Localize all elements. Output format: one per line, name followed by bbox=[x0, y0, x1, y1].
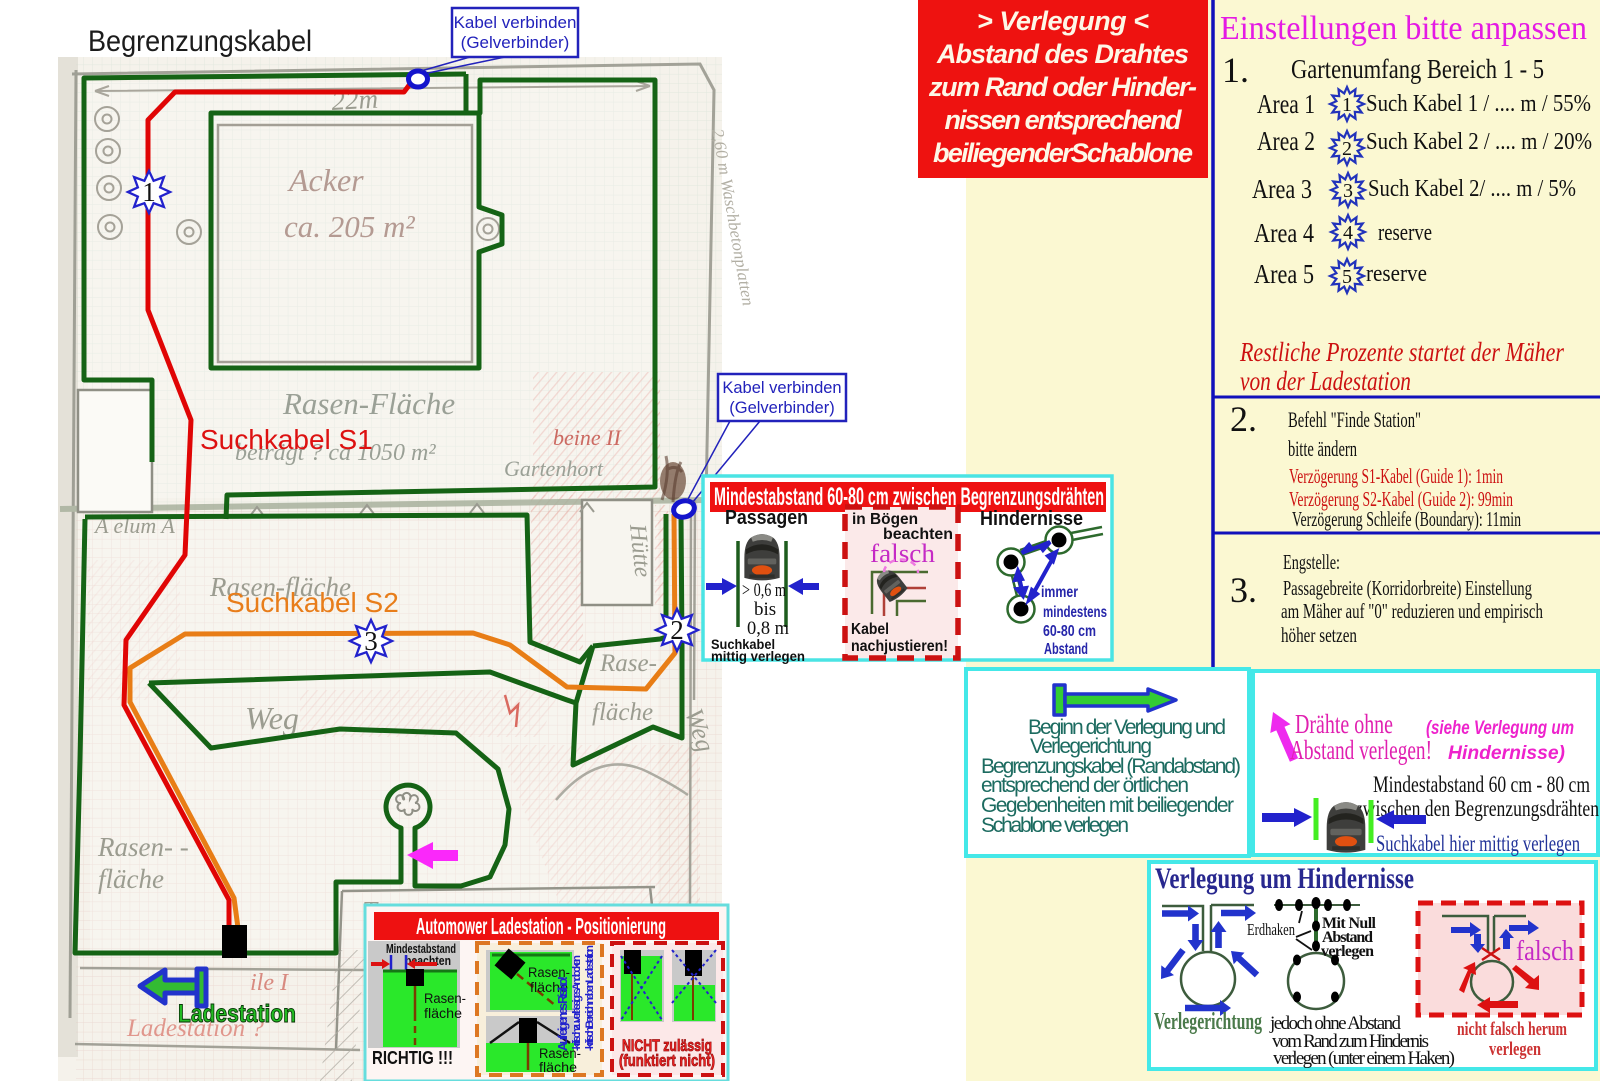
svg-text:Restliche Prozente startet de: Restliche Prozente startet der Mäher bbox=[1239, 337, 1564, 367]
svg-text:Weg: Weg bbox=[245, 700, 299, 736]
svg-text:Acker: Acker bbox=[287, 162, 364, 198]
svg-text:Rasen-: Rasen- bbox=[424, 991, 466, 1006]
svg-text:Schablone verlegen: Schablone verlegen bbox=[981, 814, 1129, 837]
svg-text:reserve: reserve bbox=[1378, 220, 1432, 246]
svg-text:fläche: fläche bbox=[592, 699, 653, 726]
svg-text:1: 1 bbox=[1342, 94, 1352, 116]
svg-text:nachjustieren!: nachjustieren! bbox=[851, 638, 948, 655]
svg-text:Area 4: Area 4 bbox=[1254, 218, 1314, 248]
svg-text:Befehl "Finde Station": Befehl "Finde Station" bbox=[1288, 407, 1421, 432]
svg-text:Hindernisse): Hindernisse) bbox=[1448, 743, 1565, 764]
svg-text:0,8 m: 0,8 m bbox=[747, 618, 789, 639]
svg-text:Mindestabstand 60 cm - 80 cm: Mindestabstand 60 cm - 80 cm bbox=[1373, 772, 1590, 797]
svg-text:Begrenzungskabel: Begrenzungskabel bbox=[88, 25, 312, 58]
svg-text:fläche: fläche bbox=[98, 864, 164, 894]
svg-text:Gartenhort: Gartenhort bbox=[504, 456, 604, 481]
svg-text:(Gelverbinder): (Gelverbinder) bbox=[729, 399, 834, 417]
svg-text:3: 3 bbox=[364, 626, 378, 656]
svg-text:verlegen: verlegen bbox=[1489, 1039, 1541, 1060]
svg-text:(Gelverbinder): (Gelverbinder) bbox=[461, 33, 570, 52]
svg-text:Kabel: Kabel bbox=[851, 621, 889, 638]
svg-text:Area 1: Area 1 bbox=[1257, 89, 1315, 119]
svg-text:(siehe Verlegung um: (siehe Verlegung um bbox=[1426, 718, 1574, 739]
svg-text:Area 2: Area 2 bbox=[1257, 126, 1315, 156]
svg-text:Abstand verlegen!: Abstand verlegen! bbox=[1290, 735, 1432, 765]
svg-text:2: 2 bbox=[670, 615, 684, 645]
svg-text:3: 3 bbox=[1343, 180, 1353, 202]
svg-text:Passagen: Passagen bbox=[725, 507, 808, 529]
svg-text:Such Kabel 2 / .... m / 20%: Such Kabel 2 / .... m / 20% bbox=[1366, 129, 1592, 155]
svg-text:mittig verlegen: mittig verlegen bbox=[711, 649, 805, 664]
svg-text:Einstellungen bitte anpassen: Einstellungen bitte anpassen bbox=[1220, 10, 1587, 47]
svg-text:2: 2 bbox=[1342, 138, 1352, 160]
svg-text:Kabel verbinden: Kabel verbinden bbox=[454, 13, 577, 32]
svg-text:Suchkabel hier mittig verlegen: Suchkabel hier mittig verlegen bbox=[1376, 831, 1580, 856]
svg-text:Gartenumfang Bereich 1 - 5: Gartenumfang Bereich 1 - 5 bbox=[1291, 54, 1544, 84]
svg-text:Such Kabel 1 / .... m / 55%: Such Kabel 1 / .... m / 55% bbox=[1366, 91, 1591, 117]
svg-text:bis: bis bbox=[754, 599, 776, 620]
svg-text:Verlegung um Hindernisse: Verlegung um Hindernisse bbox=[1155, 862, 1414, 895]
svg-text:ile I: ile I bbox=[250, 970, 289, 996]
svg-text:Ladestation: Ladestation bbox=[178, 1000, 296, 1028]
svg-text:Abstand des Drahtes: Abstand des Drahtes bbox=[936, 39, 1189, 69]
svg-text:beiliegenderSchablone: beiliegenderSchablone bbox=[933, 138, 1193, 168]
svg-text:Verzögerung Schleife (Boundary: Verzögerung Schleife (Boundary): 11min bbox=[1292, 507, 1521, 531]
svg-text:> Verlegung <: > Verlegung < bbox=[977, 6, 1149, 36]
svg-text:- kritisch Bereich neben Lades: - kritisch Bereich neben Ladestation bbox=[584, 945, 596, 1051]
svg-text:- kritisch zuverlässiges Andoc: - kritisch zuverlässiges Andocken bbox=[571, 955, 583, 1051]
svg-text:Hindernisse: Hindernisse bbox=[980, 508, 1083, 530]
svg-text:Area 3: Area 3 bbox=[1252, 174, 1312, 204]
svg-text:5: 5 bbox=[1342, 266, 1352, 288]
svg-text:reserve: reserve bbox=[1366, 261, 1427, 287]
svg-text:2.: 2. bbox=[1230, 399, 1257, 439]
svg-text:Engstelle:: Engstelle: bbox=[1283, 550, 1340, 574]
svg-text:RICHTIG !!!: RICHTIG !!! bbox=[372, 1048, 453, 1068]
svg-text:falsch: falsch bbox=[870, 539, 935, 568]
svg-text:fläche: fläche bbox=[424, 1006, 462, 1021]
svg-text:falsch: falsch bbox=[1516, 936, 1574, 967]
svg-text:> 0,6 m: > 0,6 m bbox=[742, 580, 786, 601]
svg-text:Auf eigenes Risiko!: Auf eigenes Risiko! bbox=[556, 976, 570, 1051]
svg-text:ca. 205 m²: ca. 205 m² bbox=[284, 209, 415, 244]
svg-text:Abstand: Abstand bbox=[1044, 641, 1088, 658]
svg-text:Rasen- -: Rasen- - bbox=[97, 832, 189, 862]
svg-text:höher setzen: höher setzen bbox=[1281, 623, 1357, 647]
svg-text:immer: immer bbox=[1041, 584, 1078, 601]
svg-text:am Mäher auf "0" reduzieren un: am Mäher auf "0" reduzieren und empirisc… bbox=[1281, 599, 1543, 623]
svg-text:Verlegerichtung: Verlegerichtung bbox=[1154, 1009, 1262, 1035]
svg-text:60-80 cm: 60-80 cm bbox=[1043, 623, 1096, 640]
svg-text:Suchkabel S2: Suchkabel S2 bbox=[226, 587, 399, 618]
svg-text:Kabel verbinden: Kabel verbinden bbox=[722, 379, 841, 397]
svg-text:(funktiert nicht): (funktiert nicht) bbox=[619, 1051, 715, 1070]
svg-text:nissen entsprechend: nissen entsprechend bbox=[945, 105, 1183, 135]
svg-text:bitte ändern: bitte ändern bbox=[1288, 436, 1357, 461]
svg-text:zum Rand oder Hinder-: zum Rand oder Hinder- bbox=[928, 72, 1197, 102]
svg-text:Suchkabel S1: Suchkabel S1 bbox=[200, 424, 373, 455]
svg-text:fläche: fläche bbox=[539, 1060, 577, 1075]
svg-text:Rasen-Fläche: Rasen-Fläche bbox=[282, 386, 455, 421]
svg-text:4: 4 bbox=[1343, 222, 1353, 244]
svg-text:Verzögerung S1-Kabel (Guide 1): Verzögerung S1-Kabel (Guide 1): 1min bbox=[1289, 464, 1503, 488]
svg-text:nicht falsch herum: nicht falsch herum bbox=[1457, 1019, 1567, 1040]
svg-text:verlegen (unter einem Haken): verlegen (unter einem Haken) bbox=[1273, 1048, 1455, 1069]
svg-text:Passagebreite (Korridorbreite): Passagebreite (Korridorbreite) Einstellu… bbox=[1283, 576, 1532, 600]
svg-text:Such Kabel 2/ .... m / 5%: Such Kabel 2/ .... m / 5% bbox=[1368, 176, 1576, 202]
svg-text:1: 1 bbox=[142, 177, 156, 207]
svg-text:mindestens: mindestens bbox=[1043, 604, 1107, 621]
svg-text:1.: 1. bbox=[1222, 50, 1249, 90]
svg-text:beine II: beine II bbox=[553, 425, 622, 450]
svg-text:Automower Ladestation - Positi: Automower Ladestation - Positionierung bbox=[416, 913, 666, 939]
svg-text:Rase-: Rase- bbox=[599, 650, 657, 677]
svg-text:Area 5: Area 5 bbox=[1254, 259, 1314, 289]
svg-text:von der Ladestation: von der Ladestation bbox=[1240, 366, 1411, 396]
svg-text:verlegen: verlegen bbox=[1321, 943, 1374, 960]
svg-text:Erdhaken: Erdhaken bbox=[1247, 920, 1295, 939]
svg-text:3.: 3. bbox=[1230, 570, 1257, 610]
